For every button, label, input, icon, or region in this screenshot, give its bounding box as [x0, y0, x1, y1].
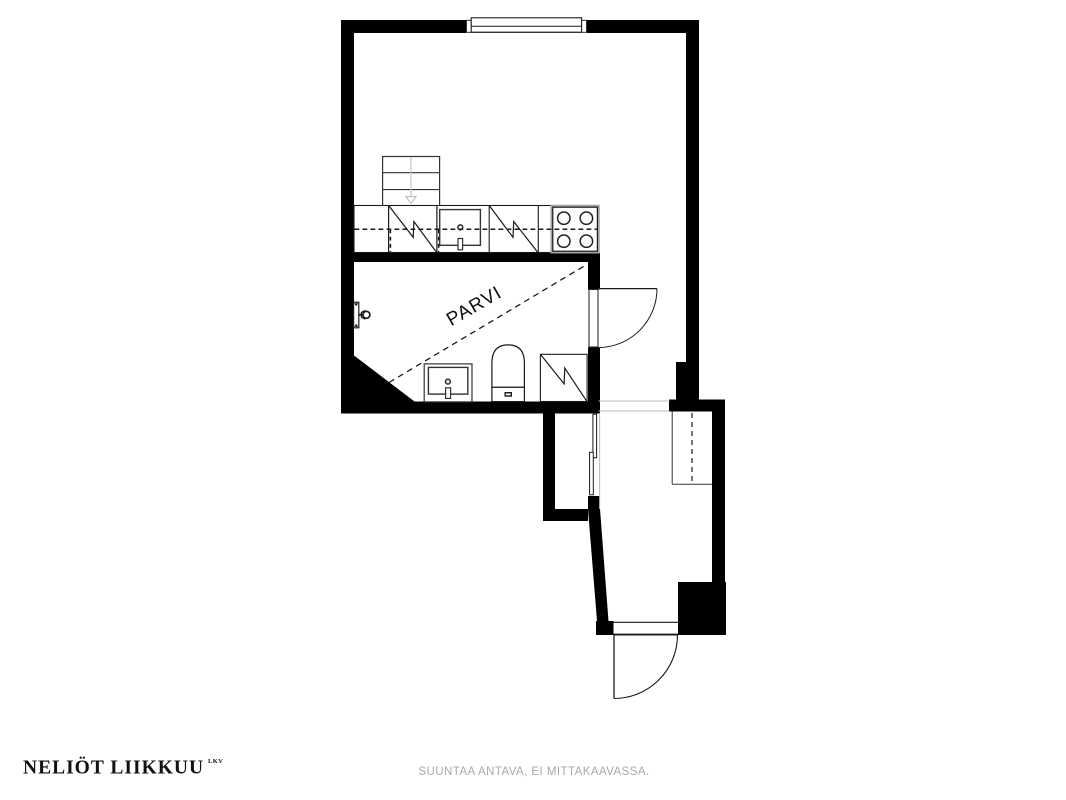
svg-text:NELIÖT LIIKKUU: NELIÖT LIIKKUU [23, 758, 204, 779]
svg-text:SUUNTAA ANTAVA, EI MITTAKAAVAS: SUUNTAA ANTAVA, EI MITTAKAAVASSA. [418, 766, 649, 778]
svg-text:LKV: LKV [208, 758, 223, 765]
